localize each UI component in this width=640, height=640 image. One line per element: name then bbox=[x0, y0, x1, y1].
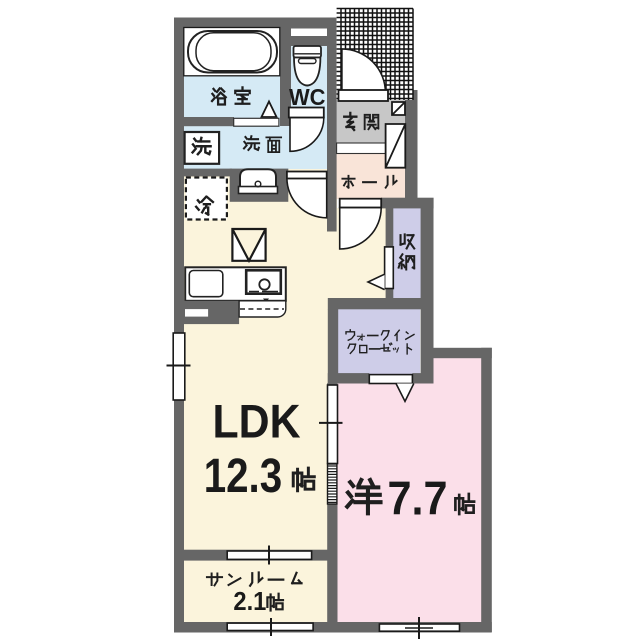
svg-text:LDK: LDK bbox=[213, 395, 301, 448]
svg-text:2.1: 2.1 bbox=[233, 586, 266, 616]
svg-text:12.3: 12.3 bbox=[204, 450, 283, 503]
svg-text:7.7: 7.7 bbox=[388, 472, 448, 525]
svg-text:WC: WC bbox=[289, 84, 326, 110]
